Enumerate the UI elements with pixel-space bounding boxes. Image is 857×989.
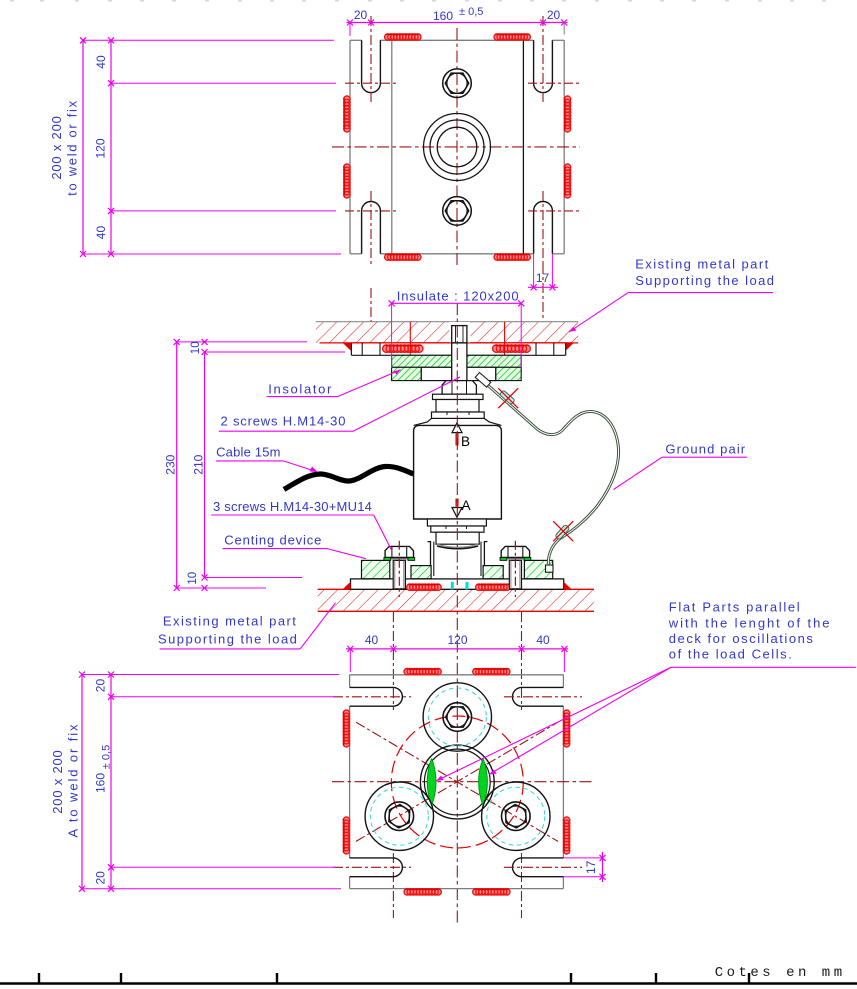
svg-text:to weld or fix: to weld or fix xyxy=(65,99,80,196)
svg-text:Existing metal part: Existing metal part xyxy=(635,257,769,272)
svg-text:Insolator: Insolator xyxy=(268,381,333,396)
svg-text:160: 160 xyxy=(94,773,108,793)
svg-text:3 screws H.M14-30+MU14: 3 screws H.M14-30+MU14 xyxy=(213,499,372,514)
svg-text:Ground pair: Ground pair xyxy=(665,441,746,456)
svg-text:A to weld or fix: A to weld or fix xyxy=(66,723,81,838)
svg-text:230: 230 xyxy=(163,454,177,474)
svg-text:± 0,5: ± 0,5 xyxy=(101,745,113,769)
svg-text:Existing metal part: Existing metal part xyxy=(163,614,297,629)
svg-text:20: 20 xyxy=(94,679,108,693)
svg-text:10: 10 xyxy=(190,341,202,354)
svg-text:20: 20 xyxy=(354,8,368,22)
svg-text:Cable 15m: Cable 15m xyxy=(216,445,281,460)
svg-text:Supporting the load: Supporting the load xyxy=(635,273,775,288)
svg-text:120: 120 xyxy=(94,138,108,158)
svg-text:17: 17 xyxy=(536,271,550,285)
svg-text:20: 20 xyxy=(94,871,108,885)
svg-text:20: 20 xyxy=(547,8,561,22)
svg-text:40: 40 xyxy=(365,633,379,647)
svg-text:B: B xyxy=(461,434,470,449)
svg-text:10: 10 xyxy=(187,572,199,585)
svg-text:Flat Parts parallel: Flat Parts parallel xyxy=(669,600,802,615)
svg-text:40: 40 xyxy=(94,55,108,69)
svg-text:Insulate : 120x200: Insulate : 120x200 xyxy=(397,289,520,304)
svg-text:Centing device: Centing device xyxy=(224,533,322,548)
svg-text:210: 210 xyxy=(192,454,206,474)
svg-text:of the load Cells.: of the load Cells. xyxy=(669,647,794,662)
svg-text:120: 120 xyxy=(447,633,467,647)
svg-text:deck for oscillations: deck for oscillations xyxy=(669,631,815,646)
svg-text:17: 17 xyxy=(584,860,598,874)
svg-text:A: A xyxy=(462,498,471,513)
svg-text:200 x 200: 200 x 200 xyxy=(50,749,65,813)
svg-text:200 x 200: 200 x 200 xyxy=(49,115,64,179)
svg-text:Cotes en mm: Cotes en mm xyxy=(715,965,846,981)
svg-text:± 0,5: ± 0,5 xyxy=(459,6,483,18)
svg-text:2 screws H.M14-30: 2 screws H.M14-30 xyxy=(221,413,347,428)
svg-text:with the lenght of the: with the lenght of the xyxy=(668,616,832,631)
svg-text:40: 40 xyxy=(94,226,108,240)
svg-text:160: 160 xyxy=(433,9,453,23)
svg-text:Supporting the load: Supporting the load xyxy=(158,631,298,646)
svg-text:40: 40 xyxy=(536,633,550,647)
